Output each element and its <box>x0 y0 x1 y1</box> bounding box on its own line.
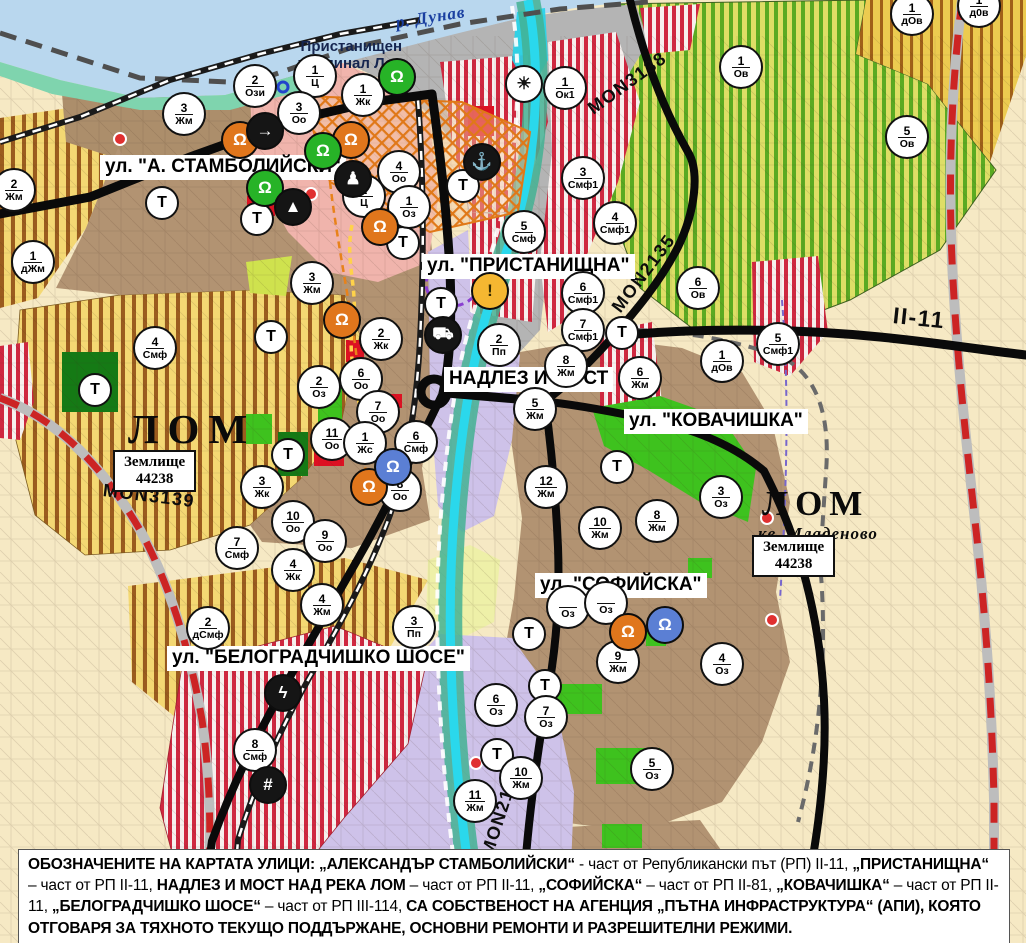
zone-marker-number: 11 <box>465 789 486 802</box>
zone-marker-code: Жм <box>175 115 192 127</box>
legend-note-segment: - част от Републикански път (РП) II-11, <box>575 856 852 873</box>
zone-marker-number: 1 <box>356 431 374 444</box>
zone-marker-number: 6 <box>407 430 425 443</box>
zone-marker: 1дОв <box>890 0 934 36</box>
zone-marker-code: Смф <box>143 349 167 361</box>
zone-marker-code: Жм <box>609 663 626 675</box>
zone-marker-number: 2 <box>246 74 264 87</box>
zone-marker-number: 4 <box>313 593 331 606</box>
zone-marker-number: 4 <box>713 652 731 665</box>
zone-marker: 2Жк <box>359 317 403 361</box>
person-icon: ♟ <box>334 160 372 198</box>
monument-icon: Ω <box>361 208 399 246</box>
land-plot-label: Землище44238 <box>752 535 835 577</box>
legend-note-segment: – част от РП III-114, <box>261 898 406 915</box>
zone-marker-number: 2 <box>372 327 390 340</box>
zone-marker-code: Жм <box>466 802 483 814</box>
zone-marker-number: 4 <box>606 211 624 224</box>
zone-marker-number: 7 <box>369 400 387 413</box>
transformer-marker: Т <box>605 316 639 350</box>
zone-marker-number: 4 <box>390 160 408 173</box>
zone-marker-number: 9 <box>316 529 334 542</box>
legend-note-segment: – част от РП II-11, <box>28 877 157 894</box>
legend-note-segment: „ПРИСТАНИЩНА“ <box>852 856 989 873</box>
zone-marker-code: Ов <box>900 138 915 150</box>
zone-marker-code: Жм <box>313 606 330 618</box>
culture-blue-icon: Ω <box>646 606 684 644</box>
transformer-marker: Т <box>600 450 634 484</box>
zone-marker-number: 4 <box>146 336 164 349</box>
monument-green-icon: Ω <box>304 132 342 170</box>
monument-icon: Ω <box>609 613 647 651</box>
zone-marker-code: Оо <box>393 491 408 503</box>
zone-marker-code: Смф1 <box>568 294 598 306</box>
fan-icon: ☀ <box>505 65 543 103</box>
zone-marker-code: Жм <box>512 779 529 791</box>
zone-marker-code: Смф1 <box>568 331 598 343</box>
zone-marker: 3Смф1 <box>561 156 605 200</box>
zone-marker-code: Ов <box>691 289 706 301</box>
street-label: ул. "ПРИСТАНИЩНА" <box>422 254 635 279</box>
zone-marker: 7Смф <box>215 526 259 570</box>
town-label: ЛОМ <box>762 484 869 524</box>
zone-marker-code: Оз <box>539 718 552 730</box>
zone-marker-number: 11 <box>322 427 343 440</box>
culture-blue-icon: Ω <box>374 448 412 486</box>
zone-marker-code: дОв <box>711 362 732 374</box>
zone-marker-number: 7 <box>537 705 555 718</box>
zone-marker: 6Оз <box>474 683 518 727</box>
zone-marker-number: 10 <box>510 766 531 779</box>
zone-marker: 5Смф1 <box>756 322 800 366</box>
zone-marker-number: 10 <box>589 516 610 529</box>
transformer-marker: Т <box>78 373 112 407</box>
zone-marker: 2Ози <box>233 64 277 108</box>
zone-marker: 8Жм <box>635 499 679 543</box>
zone-marker: 10Жм <box>578 506 622 550</box>
zone-marker-number: 1 <box>306 64 324 77</box>
zone-marker: 5Ов <box>885 115 929 159</box>
zone-marker-code: Ов <box>734 68 749 80</box>
zone-marker-code: Смф1 <box>600 224 630 236</box>
zone-marker-code: Жм <box>631 379 648 391</box>
zone-marker: 2Жм <box>0 168 36 212</box>
road-label: MON3138 <box>584 48 671 119</box>
zone-marker-code: Жс <box>357 444 372 456</box>
zone-marker-number: 9 <box>609 650 627 663</box>
zone-marker-code: Жм <box>648 522 665 534</box>
zone-marker: 1Ок1 <box>543 66 587 110</box>
zone-marker-number: 8 <box>648 509 666 522</box>
anchor-icon: ⚓ <box>463 143 501 181</box>
zone-marker: 7Оз <box>524 695 568 739</box>
zone-marker-number: 3 <box>303 271 321 284</box>
land-plot-line: 44238 <box>763 556 824 573</box>
legend-note-segment: „БЕЛОГРАДЧИШКО ШОСЕ“ <box>52 898 261 915</box>
town-label: ЛОМ <box>128 405 256 453</box>
zone-marker-number: 3 <box>253 475 271 488</box>
zone-marker-code: дЖм <box>21 263 45 275</box>
zone-marker-number: 2 <box>199 616 217 629</box>
zone-marker-number: 5 <box>515 220 533 233</box>
zone-marker: 3Жм <box>290 261 334 305</box>
zone-marker: 5Смф <box>502 210 546 254</box>
zoning-map-page: 2Ози1Ц1Жк3Жм3Оо1Ов1дОв1д0в5Ов1Ок13Смф14С… <box>0 0 1026 943</box>
legend-note-segment: – част от РП II-11, <box>406 877 539 894</box>
transformer-marker: Т <box>271 438 305 472</box>
zone-marker-code: Смф <box>512 233 536 245</box>
zone-marker-number: 6 <box>487 693 505 706</box>
zone-marker: 2дСмф <box>186 606 230 650</box>
zone-marker-number: 5 <box>769 332 787 345</box>
zone-marker-code: Смф <box>404 443 428 455</box>
zone-marker-code: Смф1 <box>763 345 793 357</box>
zone-marker-number: 1 <box>400 195 418 208</box>
zone-marker-code: Жк <box>286 571 301 583</box>
zone-marker-code: Оз <box>599 604 612 616</box>
zone-marker-number: 8 <box>246 738 264 751</box>
one-way-arrow-icon: → <box>246 112 284 150</box>
zone-marker-number: 2 <box>310 375 328 388</box>
zone-marker: 4Жк <box>271 548 315 592</box>
zone-marker-number: 5 <box>898 125 916 138</box>
zone-marker-code: Жк <box>255 488 270 500</box>
zone-marker: 4Смф1 <box>593 201 637 245</box>
zone-marker-number: 1 <box>556 76 574 89</box>
land-plot-line: Землище <box>763 539 824 556</box>
zone-marker: 4Жм <box>300 583 344 627</box>
zone-marker-code: Жм <box>5 191 22 203</box>
zone-marker-code: Жм <box>526 410 543 422</box>
zone-marker-code: Оо <box>392 173 407 185</box>
legend-note: ОБОЗНАЧЕНИТЕ НА КАРТАТА УЛИЦИ: „АЛЕКСАНД… <box>18 849 1010 943</box>
zone-marker: 11Жм <box>453 779 497 823</box>
zone-marker-number: 3 <box>574 166 592 179</box>
zone-marker-number: 10 <box>282 510 303 523</box>
zone-marker-number <box>597 591 615 604</box>
zone-marker-code: Жм <box>557 367 574 379</box>
zone-marker-code: Оз <box>489 706 502 718</box>
zone-marker-code: Оз <box>402 208 415 220</box>
zone-marker: 1дЖм <box>11 240 55 284</box>
zone-marker-number: 7 <box>228 536 246 549</box>
zone-marker-code: Жк <box>374 340 389 352</box>
zone-marker-number: 6 <box>689 276 707 289</box>
zone-marker-code: Жм <box>537 488 554 500</box>
transformer-marker: Т <box>254 320 288 354</box>
transformer-marker: Т <box>512 617 546 651</box>
zone-marker: 4Смф <box>133 326 177 370</box>
zone-marker-number: 5 <box>643 757 661 770</box>
land-plot-label: Землище44238 <box>113 450 196 492</box>
zone-marker-number: 3 <box>290 101 308 114</box>
zone-marker-code: Ц <box>311 77 319 89</box>
zone-marker-number: 1 <box>24 250 42 263</box>
zone-marker: 3Пп <box>392 605 436 649</box>
zone-marker-code: Оо <box>286 523 301 535</box>
zone-marker-number: 12 <box>535 475 556 488</box>
legend-note-segment: „КОВАЧИШКА“ <box>776 877 890 894</box>
zone-marker-number: 2 <box>5 178 23 191</box>
zone-marker-code: Жм <box>303 284 320 296</box>
zone-marker: 6Ов <box>676 266 720 310</box>
zone-marker: 2Пп <box>477 323 521 367</box>
zone-marker-code: Оз <box>561 608 574 620</box>
zone-marker-number: 3 <box>175 102 193 115</box>
zone-marker-code: Смф1 <box>568 179 598 191</box>
zone-marker-code: Оо <box>318 542 333 554</box>
zone-marker-code: Оз <box>715 665 728 677</box>
zone-marker-code: Оз <box>312 388 325 400</box>
marker-layer: 2Ози1Ц1Жк3Жм3Оо1Ов1дОв1д0в5Ов1Ок13Смф14С… <box>0 0 1026 943</box>
zone-marker-number: 1 <box>354 83 372 96</box>
zone-marker-number: 3 <box>405 615 423 628</box>
zone-marker: 1Ов <box>719 45 763 89</box>
street-label: ул. "БЕЛОГРАДЧИШКО ШОСЕ" <box>167 646 470 671</box>
zone-marker: 10Жм <box>499 756 543 800</box>
zone-marker-number: 6 <box>352 367 370 380</box>
zone-marker-number: 4 <box>284 558 302 571</box>
zone-marker-code: дОв <box>901 15 922 27</box>
railway-crossing-icon: # <box>249 766 287 804</box>
zone-marker-code: Оо <box>354 380 369 392</box>
zone-marker-code: Ц <box>360 197 368 209</box>
zone-marker-code: Пп <box>492 346 506 358</box>
legend-note-segment: – част от РП II-81, <box>642 877 776 894</box>
zone-marker-code: Оо <box>325 440 340 452</box>
zone-marker-code: дСмф <box>192 629 223 641</box>
legend-note-segment: НАДЛЕЗ И МОСТ НАД РЕКА ЛОМ <box>157 877 406 894</box>
zone-marker: 1д0в <box>957 0 1001 28</box>
zone-marker-code: Ок1 <box>555 89 574 101</box>
zone-marker-number <box>559 595 577 608</box>
zone-marker-number: 6 <box>631 366 649 379</box>
zone-marker-number: 1 <box>970 0 988 7</box>
land-plot-line: Землище <box>124 454 185 471</box>
zone-marker: 2Оз <box>297 365 341 409</box>
zone-marker-code: Смф <box>243 751 267 763</box>
terminal-green-icon: Ω <box>378 58 416 96</box>
port-terminal-line: Пристанищен <box>298 38 405 55</box>
zone-marker-code: Оо <box>292 114 307 126</box>
zone-marker: 8Жм <box>544 344 588 388</box>
zone-marker-number: 2 <box>490 333 508 346</box>
zone-marker: 3Оз <box>699 475 743 519</box>
legend-note-segment: ОБОЗНАЧЕНИТЕ НА КАРТАТА УЛИЦИ: „АЛЕКСАНД… <box>28 856 575 873</box>
mound-icon: ▲ <box>274 188 312 226</box>
zone-marker: 1дОв <box>700 339 744 383</box>
zone-marker: 6Жм <box>618 356 662 400</box>
zone-marker-number: 7 <box>574 318 592 331</box>
zone-marker-code: д0в <box>970 7 989 19</box>
zone-marker: 3Жм <box>162 92 206 136</box>
road-label: II-11 <box>892 302 947 334</box>
monument-icon: Ω <box>323 301 361 339</box>
zone-marker-code: Оз <box>714 498 727 510</box>
land-plot-line: 44238 <box>124 471 185 488</box>
zone-marker: 5Оз <box>630 747 674 791</box>
zone-marker-code: Оз <box>645 770 658 782</box>
transformer-marker: Т <box>145 186 179 220</box>
zone-marker-code: Ози <box>245 87 265 99</box>
zone-marker-code: Смф <box>225 549 249 561</box>
zone-marker: 3Жк <box>240 465 284 509</box>
street-label: ул. "КОВАЧИШКА" <box>624 409 808 434</box>
zone-marker-number: 1 <box>732 55 750 68</box>
zone-marker: 4Оз <box>700 642 744 686</box>
legend-note-segment: „СОФИЙСКА“ <box>538 877 642 894</box>
zone-marker-code: Жк <box>356 96 371 108</box>
zone-marker-code: Жм <box>591 529 608 541</box>
truck-icon: ⛟ <box>424 316 462 354</box>
zone-marker: 12Жм <box>524 465 568 509</box>
zone-marker-number: 6 <box>574 281 592 294</box>
transformer-marker: Т <box>240 202 274 236</box>
river-label: р. Дунав <box>394 2 466 33</box>
zone-marker-number: 8 <box>557 354 575 367</box>
zone-marker-number: 5 <box>526 397 544 410</box>
legend-note-text: ОБОЗНАЧЕНИТЕ НА КАРТАТА УЛИЦИ: „АЛЕКСАНД… <box>28 856 999 937</box>
zone-marker-number: 1 <box>903 2 921 15</box>
warning-icon: ! <box>471 272 509 310</box>
zone-marker-number: 1 <box>713 349 731 362</box>
zone-marker: 5Жм <box>513 387 557 431</box>
zone-marker-code: Пп <box>407 628 421 640</box>
zone-marker-number: 3 <box>712 485 730 498</box>
lightning-icon: ϟ <box>264 674 302 712</box>
